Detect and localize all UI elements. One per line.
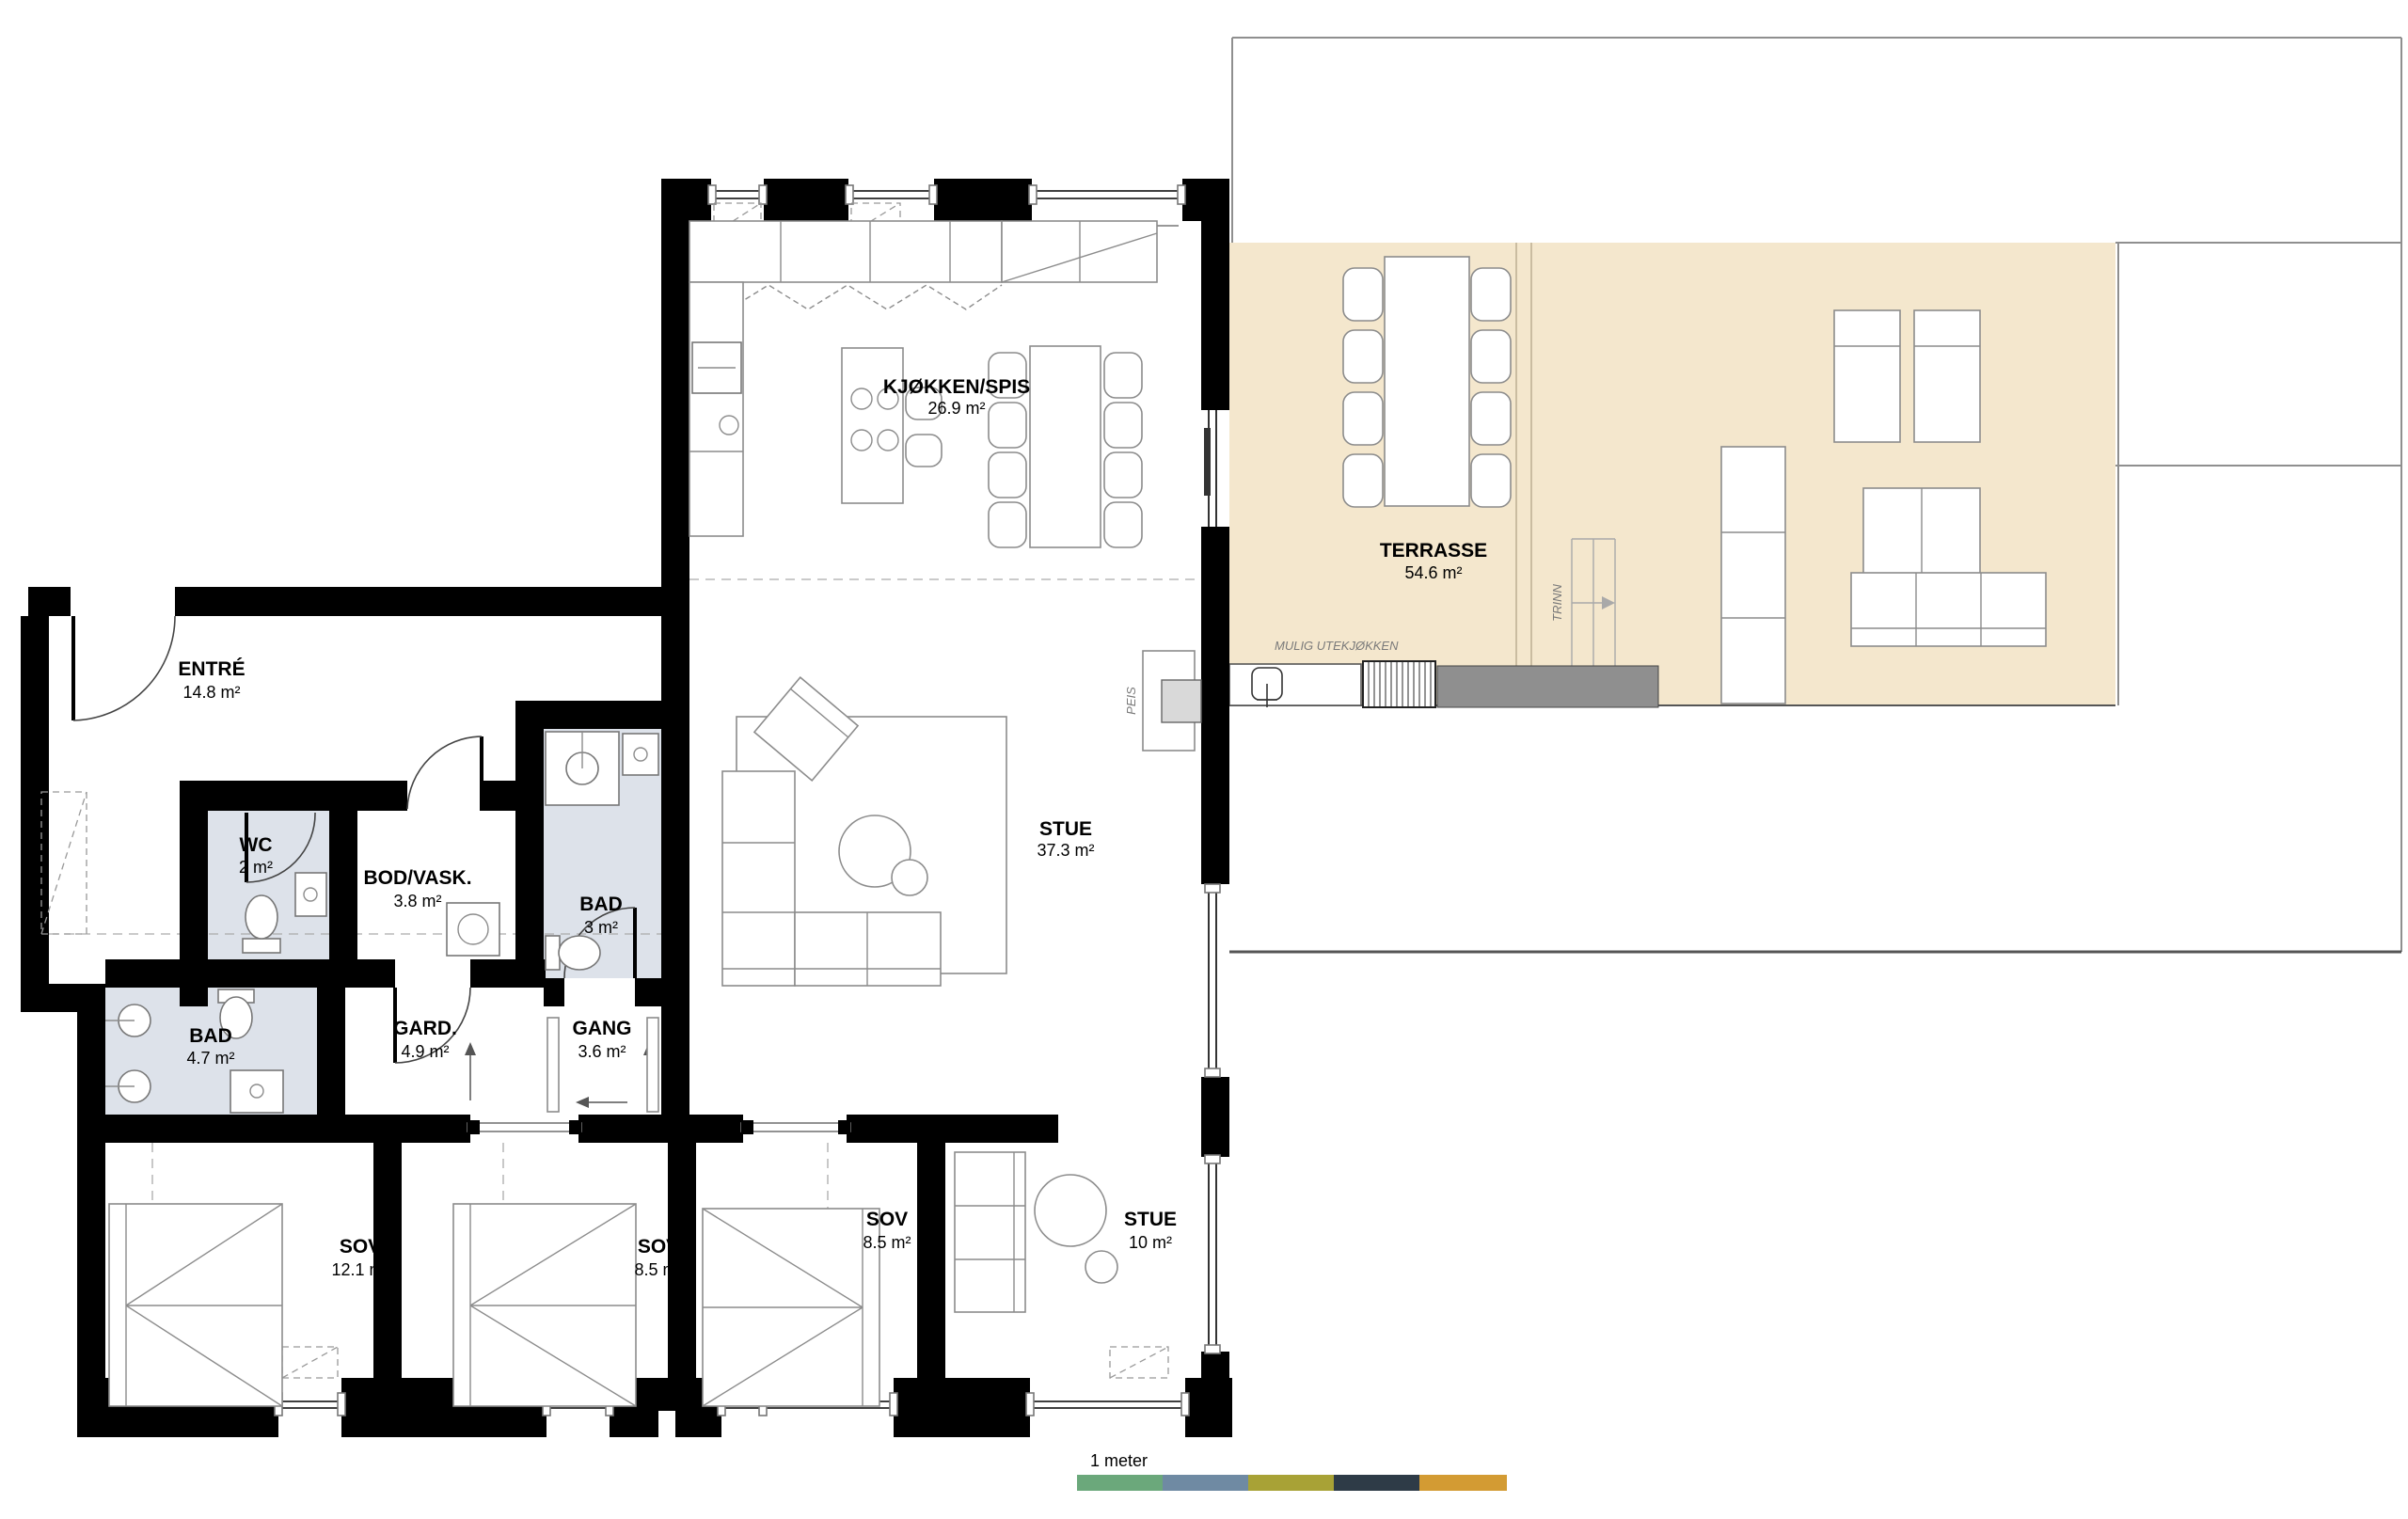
fireplace: PEIS <box>1124 651 1201 751</box>
entry-door <box>73 616 175 720</box>
svg-text:10 m²: 10 m² <box>1129 1233 1172 1252</box>
toilet <box>546 936 560 970</box>
terrace-storage-unit <box>1721 447 1785 704</box>
svg-text:2 m²: 2 m² <box>239 858 273 877</box>
svg-text:12.1 m²: 12.1 m² <box>331 1260 388 1279</box>
outdoor-kitchen-counter <box>1229 664 1361 707</box>
room-label-bod-vask: BOD/VASK. <box>363 867 471 889</box>
kitchen-counter-left <box>689 282 743 536</box>
scale-segment-1 <box>1077 1475 1163 1491</box>
svg-text:8.5 m²: 8.5 m² <box>634 1260 682 1279</box>
floor-plan-drawing: TRINN <box>0 0 2408 1519</box>
east-window-living <box>1205 884 1220 1077</box>
scale-bar: 1 meter <box>1077 1451 1507 1491</box>
side-table <box>892 860 927 895</box>
room-label-sov-85a: SOV <box>638 1236 679 1258</box>
scale-bar-label: 1 meter <box>1090 1451 1148 1470</box>
room-label-terrasse: TERRASSE <box>1380 540 1487 562</box>
room-label-entre: ENTRÉ <box>178 658 245 680</box>
svg-text:54.6 m²: 54.6 m² <box>1404 563 1462 582</box>
svg-text:26.9 m²: 26.9 m² <box>927 399 985 418</box>
kitchen-counter-top <box>689 221 1157 309</box>
bed-sov-121 <box>109 1204 282 1406</box>
footstool <box>1085 1251 1117 1283</box>
terrace-sofa <box>1851 573 2046 646</box>
washing-machine <box>447 903 499 956</box>
room-label-gard: GARD. <box>393 1018 457 1039</box>
room-label-sov-85b: SOV <box>866 1209 908 1230</box>
outdoor-kitchen-annotation: MULIG UTEKJØKKEN <box>1275 639 1399 653</box>
room-label-wc: WC <box>240 834 273 856</box>
kitchen-island <box>842 348 942 503</box>
floor-plan-canvas: TRINN <box>0 0 2408 1519</box>
laundry-fixtures <box>447 903 499 956</box>
circulation-arrows <box>465 1042 655 1108</box>
svg-text:14.8 m²: 14.8 m² <box>182 683 240 702</box>
scale-segment-5 <box>1419 1475 1507 1491</box>
scale-segment-2 <box>1163 1475 1248 1491</box>
svg-text:3.8 m²: 3.8 m² <box>393 892 441 910</box>
vanity-sink <box>230 1070 283 1113</box>
living-room: PEIS <box>722 651 1201 986</box>
scale-segment-4 <box>1334 1475 1419 1491</box>
scale-segment-3 <box>1248 1475 1334 1491</box>
sliding-door-sov1 <box>467 1120 581 1134</box>
room-label-bad-3: BAD <box>579 894 623 915</box>
terrace-hatched-zone <box>1363 661 1435 707</box>
bed-sov-85a <box>453 1204 636 1406</box>
room-label-stue-10: STUE <box>1124 1209 1177 1230</box>
steps-annotation: TRINN <box>1550 584 1564 622</box>
bed-sov-85b <box>703 1209 879 1406</box>
sink <box>623 734 658 775</box>
room-label-sov-121: SOV <box>340 1236 381 1258</box>
svg-text:4.9 m²: 4.9 m² <box>401 1042 449 1061</box>
sink <box>295 873 326 916</box>
svg-text:37.3 m²: 37.3 m² <box>1037 841 1094 860</box>
svg-text:8.5 m²: 8.5 m² <box>863 1233 911 1252</box>
toilet <box>243 939 280 953</box>
stue10-furniture <box>955 1152 1117 1312</box>
kitchen-window-wide <box>1029 185 1185 226</box>
terrace-dining-table <box>1343 257 1511 507</box>
sliding-door-sov3 <box>741 1120 850 1134</box>
svg-text:4.7 m²: 4.7 m² <box>186 1049 234 1068</box>
room-label-kjokken-spis: KJØKKEN/SPIS <box>883 376 1030 398</box>
round-chair <box>1035 1175 1106 1246</box>
room-label-bad-47: BAD <box>189 1025 232 1047</box>
room-label-stue: STUE <box>1039 818 1092 840</box>
svg-text:3 m²: 3 m² <box>584 918 618 937</box>
deck-strip <box>1437 666 1658 707</box>
island-stool <box>906 435 942 467</box>
terrace-sliding-door <box>1204 410 1216 527</box>
terrace: TRINN <box>1229 243 2115 707</box>
east-window-stue10 <box>1205 1155 1220 1353</box>
terrace-side-table <box>1863 488 1980 585</box>
svg-text:3.6 m²: 3.6 m² <box>578 1042 626 1061</box>
room-label-gang: GANG <box>573 1018 632 1039</box>
fireplace-annotation: PEIS <box>1124 687 1138 715</box>
